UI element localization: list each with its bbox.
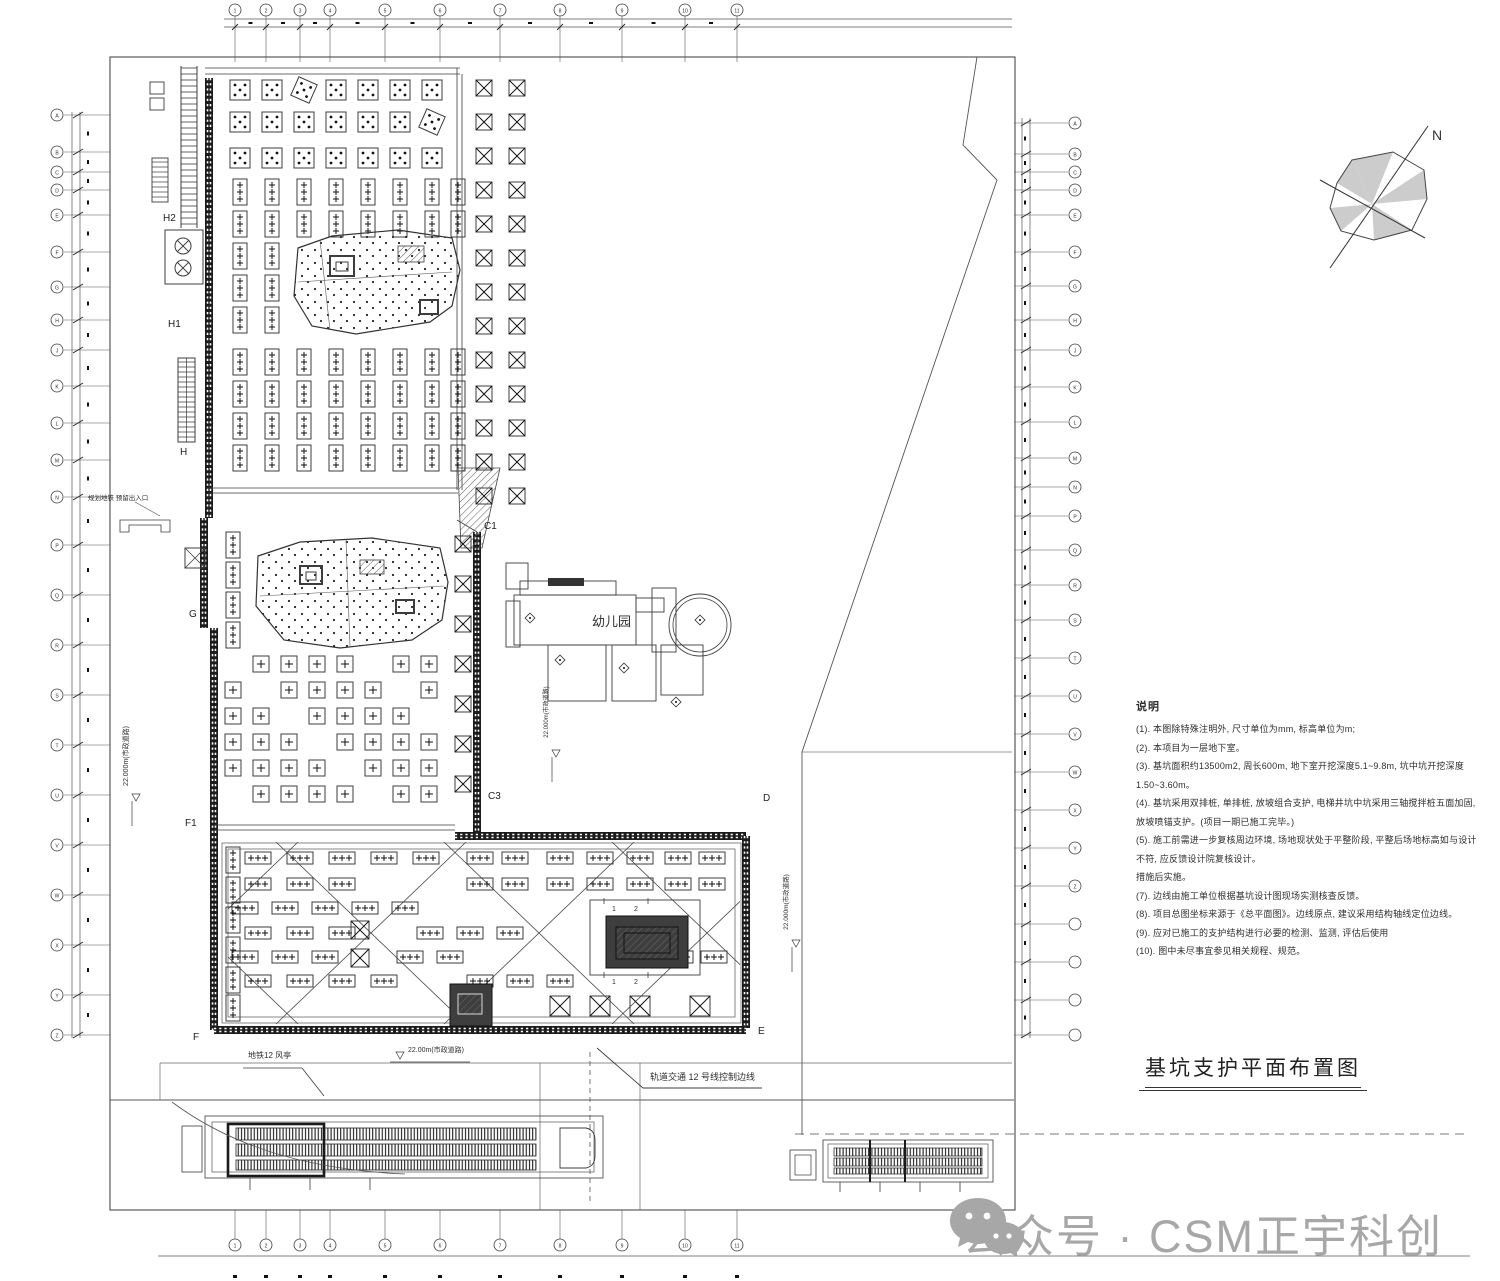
svg-text:22.000m(市政道路): 22.000m(市政道路) xyxy=(781,874,790,930)
svg-text:8: 8 xyxy=(559,1244,562,1250)
svg-text:E: E xyxy=(1073,214,1077,220)
north-arrow: N xyxy=(1320,126,1442,268)
svg-text:Y: Y xyxy=(1073,847,1077,853)
svg-text:N: N xyxy=(1073,486,1077,492)
svg-text:3: 3 xyxy=(299,1244,302,1250)
svg-text:B: B xyxy=(1073,153,1077,159)
svg-text:U: U xyxy=(1073,695,1077,701)
note-line: (3). 基坑面积约13500m2, 周长600m, 地下室开挖深度5.1~9.… xyxy=(1136,757,1478,794)
note-line: (8). 项目总图坐标来源于《总平面图》。边线原点, 建议采用结构轴线定位边线。 xyxy=(1136,905,1478,924)
annotations: H2H1HGF1FC1C3DE22.000m(市政道路)22.000m(市政道路… xyxy=(88,213,800,1096)
note-line: (7). 边线由施工单位根据基坑设计图现场实测核查反馈。 xyxy=(1136,887,1478,906)
drawing-sheet: 12345678910111234567891011ABCDEFGHJKLMNP… xyxy=(0,0,1500,1281)
svg-text:11: 11 xyxy=(734,1244,739,1250)
metro-structures xyxy=(172,1102,1465,1192)
svg-text:N: N xyxy=(55,496,59,502)
notes-panel: 说明 (1). 本图除特殊注明外, 尺寸单位为mm, 标高单位为m;(2). 本… xyxy=(1136,698,1478,961)
svg-text:7: 7 xyxy=(499,9,502,15)
svg-text:X: X xyxy=(55,944,59,950)
svg-text:6: 6 xyxy=(439,1244,442,1250)
inner-pit-details: 1212 xyxy=(450,898,700,1026)
svg-text:C: C xyxy=(1073,171,1077,177)
svg-text:E: E xyxy=(758,1026,765,1037)
kindergarten: 幼儿园 xyxy=(506,563,731,707)
svg-text:幼儿园: 幼儿园 xyxy=(592,614,631,629)
note-line: 措施后实施。 xyxy=(1136,868,1478,887)
svg-text:7: 7 xyxy=(499,1244,502,1250)
svg-text:9: 9 xyxy=(621,1244,624,1250)
svg-text:F: F xyxy=(1073,251,1076,257)
svg-text:H: H xyxy=(180,447,187,458)
svg-text:R: R xyxy=(1073,584,1077,590)
svg-text:S: S xyxy=(1073,619,1077,625)
svg-text:X: X xyxy=(1073,809,1077,815)
svg-text:M: M xyxy=(55,459,59,465)
svg-text:W: W xyxy=(55,894,60,900)
svg-text:A: A xyxy=(1073,122,1077,128)
svg-text:1: 1 xyxy=(234,9,237,15)
note-line: (5). 施工前需进一步复核周边环境, 场地现状处于平整阶段, 平整后场地标高如… xyxy=(1136,831,1478,868)
svg-text:地铁12 风亭: 地铁12 风亭 xyxy=(248,1050,291,1060)
svg-text:H1: H1 xyxy=(168,319,181,330)
svg-text:M: M xyxy=(1073,457,1077,463)
svg-text:9: 9 xyxy=(621,9,624,15)
left-structures xyxy=(120,66,205,568)
svg-text:G: G xyxy=(189,609,197,620)
svg-text:5: 5 xyxy=(384,1244,387,1250)
svg-text:4: 4 xyxy=(329,9,332,15)
svg-text:J: J xyxy=(56,349,59,355)
svg-text:4: 4 xyxy=(329,1244,332,1250)
watermark: 公众号 · CSM正宇科创 xyxy=(948,1196,1488,1268)
note-line: (4). 基坑采用双排桩, 单排桩, 放坡组合支护, 电梯井坑中坑采用三轴搅拌桩… xyxy=(1136,794,1478,831)
svg-text:10: 10 xyxy=(682,9,688,15)
svg-text:L: L xyxy=(1074,421,1077,427)
svg-text:2: 2 xyxy=(634,979,638,986)
svg-text:D: D xyxy=(1073,189,1077,195)
svg-text:22.00m(市政道路): 22.00m(市政道路) xyxy=(408,1045,464,1054)
svg-text:1: 1 xyxy=(234,1244,237,1250)
svg-text:规划地铁 预留出入口: 规划地铁 预留出入口 xyxy=(88,493,148,502)
drawing-title: 基坑支护平面布置图 xyxy=(1145,1052,1361,1088)
svg-text:Q: Q xyxy=(1073,549,1077,555)
svg-text:2: 2 xyxy=(634,906,638,913)
svg-text:5: 5 xyxy=(384,9,387,15)
svg-text:G: G xyxy=(55,286,59,292)
watermark-text: 公众号 · CSM正宇科创 xyxy=(962,1200,1443,1265)
svg-text:V: V xyxy=(55,844,59,850)
svg-text:L: L xyxy=(56,422,59,428)
svg-text:U: U xyxy=(55,794,59,800)
svg-text:C3: C3 xyxy=(488,791,501,802)
svg-text:C1: C1 xyxy=(484,521,497,532)
svg-text:2: 2 xyxy=(265,1244,268,1250)
note-line: (1). 本图除特殊注明外, 尺寸单位为mm, 标高单位为m; xyxy=(1136,720,1478,739)
svg-text:2: 2 xyxy=(265,9,268,15)
svg-text:K: K xyxy=(55,385,59,391)
svg-text:W: W xyxy=(1073,771,1078,777)
note-line: (2). 本项目为一层地下室。 xyxy=(1136,739,1478,758)
svg-text:3: 3 xyxy=(299,9,302,15)
svg-text:H: H xyxy=(55,319,59,325)
note-line: (10). 图中未尽事宜参见相关规程、规范。 xyxy=(1136,942,1478,961)
svg-text:F: F xyxy=(55,251,58,257)
svg-text:K: K xyxy=(1073,386,1077,392)
svg-text:H: H xyxy=(1073,319,1077,325)
svg-text:Y: Y xyxy=(55,994,59,1000)
svg-text:C: C xyxy=(55,171,59,177)
svg-text:B: B xyxy=(55,151,59,157)
svg-text:R: R xyxy=(55,644,59,650)
svg-text:J: J xyxy=(1074,349,1077,355)
svg-text:T: T xyxy=(55,744,58,750)
svg-text:22.000m(市政道路): 22.000m(市政道路) xyxy=(542,686,550,737)
svg-text:D: D xyxy=(763,793,770,804)
svg-text:N: N xyxy=(1432,127,1442,143)
note-line: (9). 应对已施工的支护结构进行必要的检测、监测, 评估后使用 xyxy=(1136,924,1478,943)
notes-lines: (1). 本图除特殊注明外, 尺寸单位为mm, 标高单位为m;(2). 本项目为… xyxy=(1136,720,1478,961)
svg-text:T: T xyxy=(1073,657,1076,663)
svg-text:22.000m(市政道路): 22.000m(市政道路) xyxy=(121,726,130,786)
svg-text:Z: Z xyxy=(55,1034,58,1040)
svg-text:V: V xyxy=(1073,733,1077,739)
svg-text:F1: F1 xyxy=(185,818,197,829)
svg-text:H2: H2 xyxy=(163,213,176,224)
svg-text:S: S xyxy=(55,694,59,700)
notes-heading: 说明 xyxy=(1136,698,1478,714)
svg-text:Q: Q xyxy=(55,594,59,600)
svg-text:G: G xyxy=(1073,285,1077,291)
svg-text:Z: Z xyxy=(1073,885,1076,891)
svg-text:11: 11 xyxy=(734,9,739,15)
site-plan: 12345678910111234567891011ABCDEFGHJKLMNP… xyxy=(0,0,1500,1281)
svg-text:10: 10 xyxy=(682,1244,688,1250)
svg-text:P: P xyxy=(1073,515,1077,521)
svg-text:1: 1 xyxy=(612,979,616,986)
svg-text:E: E xyxy=(55,214,59,220)
svg-text:轨道交通 12 号线控制边线: 轨道交通 12 号线控制边线 xyxy=(650,1071,755,1082)
wechat-icon xyxy=(948,1196,1026,1268)
svg-text:1: 1 xyxy=(612,906,616,913)
svg-text:8: 8 xyxy=(559,9,562,15)
svg-text:F: F xyxy=(193,1032,199,1043)
svg-text:D: D xyxy=(55,189,59,195)
svg-text:P: P xyxy=(55,544,59,550)
svg-text:6: 6 xyxy=(439,9,442,15)
svg-text:A: A xyxy=(55,114,59,120)
